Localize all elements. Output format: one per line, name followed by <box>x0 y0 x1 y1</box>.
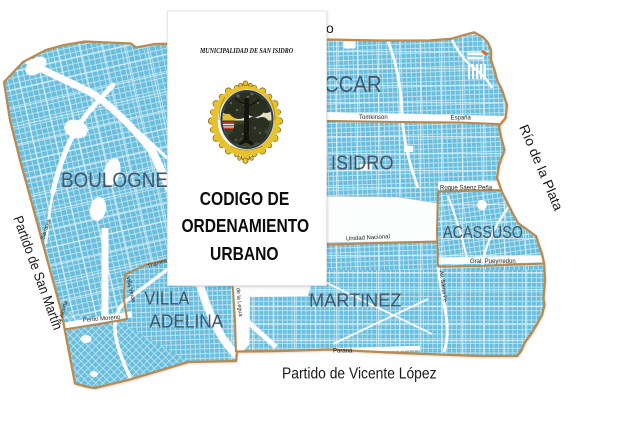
svg-text:ACASSUSO: ACASSUSO <box>443 222 523 242</box>
svg-text:Paraná: Paraná <box>333 349 353 355</box>
svg-text:Partido de Vicente López: Partido de Vicente López <box>282 366 437 383</box>
svg-text:Roque Sáenz Peña: Roque Sáenz Peña <box>440 186 493 192</box>
svg-text:URBANO: URBANO <box>210 243 279 264</box>
svg-text:CODIGO DE: CODIGO DE <box>200 188 290 209</box>
svg-text:VILLA: VILLA <box>144 288 190 309</box>
svg-text:MARTINEZ: MARTINEZ <box>309 291 402 311</box>
svg-text:Tomkinson: Tomkinson <box>359 115 388 121</box>
svg-text:MUNICIPALIDAD DE SAN ISIDRO: MUNICIPALIDAD DE SAN ISIDRO <box>199 46 293 55</box>
svg-text:España: España <box>451 116 472 122</box>
svg-text:BOULOGNE: BOULOGNE <box>61 169 168 192</box>
svg-text:ADELINA: ADELINA <box>149 311 223 332</box>
svg-text:Gral. Pueyrredon: Gral. Pueyrredon <box>470 259 516 265</box>
svg-text:o: o <box>326 20 334 36</box>
svg-text:ORDENAMIENTO: ORDENAMIENTO <box>181 215 309 236</box>
